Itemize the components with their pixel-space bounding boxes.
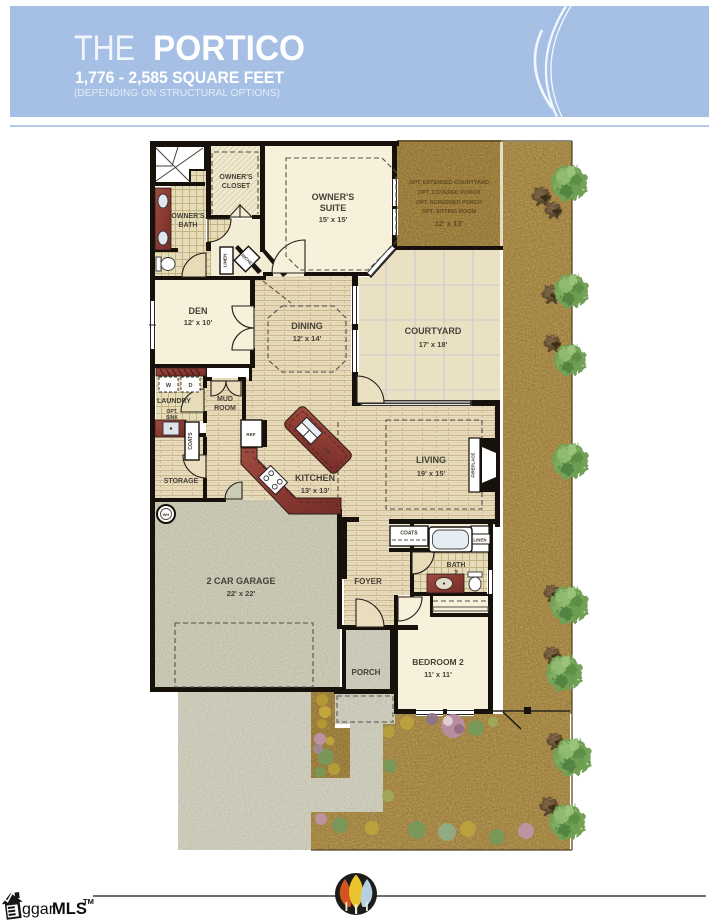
svg-text:12' x 13': 12' x 13' — [435, 219, 464, 228]
svg-text:OPT. EXTENDED COURTYARD: OPT. EXTENDED COURTYARD — [409, 180, 489, 186]
svg-text:OPT. SCREENED PORCH: OPT. SCREENED PORCH — [416, 200, 482, 206]
svg-text:COATS: COATS — [188, 432, 194, 450]
svg-text:13' x 13': 13' x 13' — [301, 486, 330, 495]
svg-text:FOYER: FOYER — [354, 577, 382, 586]
svg-text:SUITE: SUITE — [320, 203, 347, 213]
svg-text:OPT. COVERED PORCH: OPT. COVERED PORCH — [418, 190, 480, 196]
svg-text:MUD: MUD — [217, 396, 233, 403]
svg-text:D: D — [189, 383, 193, 389]
svg-text:LIVING: LIVING — [416, 455, 446, 465]
svg-text:DEN: DEN — [188, 306, 207, 316]
svg-text:ggar: ggar — [22, 901, 55, 918]
svg-text:1,776 - 2,585 SQUARE FEET: 1,776 - 2,585 SQUARE FEET — [75, 69, 284, 87]
svg-text:12' x 14': 12' x 14' — [293, 334, 322, 343]
svg-text:2 CAR GARAGE: 2 CAR GARAGE — [206, 576, 275, 586]
svg-text:COATS: COATS — [400, 531, 418, 537]
svg-text:KITCHEN: KITCHEN — [295, 473, 335, 483]
svg-text:BATH: BATH — [447, 562, 466, 569]
svg-text:WH: WH — [163, 512, 170, 517]
svg-text:PORCH: PORCH — [352, 668, 381, 677]
svg-text:CLOSET: CLOSET — [222, 183, 251, 190]
svg-text:BEDROOM 2: BEDROOM 2 — [412, 657, 464, 667]
svg-text:19' x 15': 19' x 15' — [417, 469, 446, 478]
svg-text:SINK: SINK — [166, 415, 178, 421]
svg-text:OPT. SITTING ROOM: OPT. SITTING ROOM — [422, 209, 477, 215]
svg-text:MLS: MLS — [52, 900, 87, 918]
svg-text:OWNER'S: OWNER'S — [312, 192, 355, 202]
svg-text:TM: TM — [83, 897, 94, 906]
svg-text:(DEPENDING ON STRUCTURAL OPTIO: (DEPENDING ON STRUCTURAL OPTIONS) — [74, 87, 280, 99]
svg-text:2: 2 — [454, 570, 458, 577]
svg-text:OWNER'S: OWNER'S — [171, 213, 204, 220]
svg-text:OWNER'S: OWNER'S — [219, 174, 252, 181]
svg-text:FIREPLACE: FIREPLACE — [471, 452, 476, 477]
svg-text:STORAGE: STORAGE — [164, 478, 199, 485]
svg-text:LINEN: LINEN — [473, 538, 486, 543]
svg-text:22' x 22': 22' x 22' — [227, 589, 256, 598]
svg-text:ROOM: ROOM — [214, 405, 236, 412]
svg-text:THE: THE — [74, 29, 135, 68]
svg-text:DINING: DINING — [291, 321, 323, 331]
svg-text:W: W — [166, 383, 172, 389]
svg-text:LINEN: LINEN — [223, 253, 228, 267]
svg-text:COURTYARD: COURTYARD — [405, 326, 462, 336]
svg-text:PORTICO: PORTICO — [153, 29, 305, 68]
svg-text:BATH: BATH — [179, 222, 198, 229]
svg-text:REF: REF — [246, 432, 255, 437]
svg-text:LAUNDRY: LAUNDRY — [157, 398, 191, 405]
svg-text:11' x 11': 11' x 11' — [424, 670, 452, 679]
svg-text:12' x 10': 12' x 10' — [184, 318, 213, 327]
svg-text:15' x 15': 15' x 15' — [319, 215, 348, 224]
svg-text:17' x 18': 17' x 18' — [419, 340, 448, 349]
